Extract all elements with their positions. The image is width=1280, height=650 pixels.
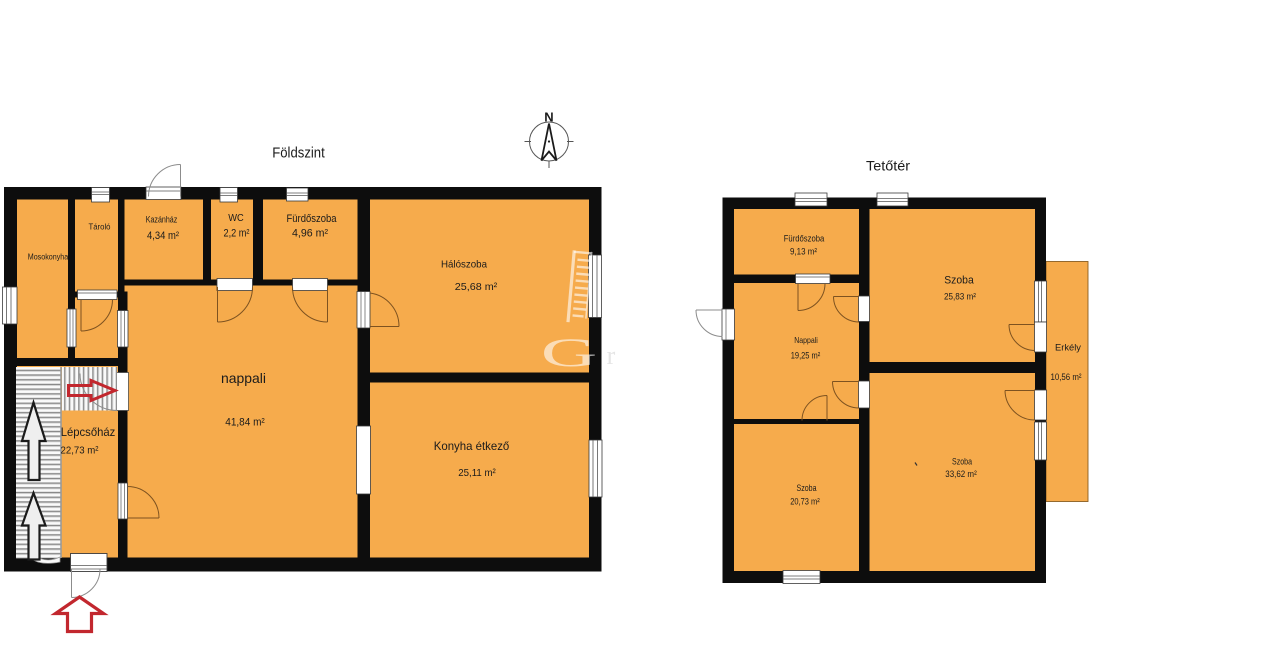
svg-text:N: N bbox=[544, 110, 553, 125]
svg-text:G: G bbox=[541, 331, 597, 375]
svg-text:Hálószoba: Hálószoba bbox=[441, 259, 487, 271]
svg-text:22,73 m²: 22,73 m² bbox=[61, 445, 99, 457]
svg-text:Kazánház: Kazánház bbox=[146, 215, 178, 225]
svg-text:4,34 m²: 4,34 m² bbox=[147, 230, 179, 242]
svg-text:4,96 m²: 4,96 m² bbox=[292, 228, 328, 240]
svg-text:41,84 m²: 41,84 m² bbox=[225, 417, 265, 429]
svg-text:9,13 m²: 9,13 m² bbox=[790, 247, 817, 258]
svg-text:10,56 m²: 10,56 m² bbox=[1051, 372, 1082, 383]
svg-text:nappali: nappali bbox=[221, 370, 266, 386]
svg-text:Lépcsőház: Lépcsőház bbox=[61, 425, 116, 439]
svg-text:Földszint: Földszint bbox=[272, 145, 325, 162]
svg-text:25,11 m²: 25,11 m² bbox=[458, 467, 496, 479]
svg-text:Szoba: Szoba bbox=[797, 483, 818, 494]
svg-text:20,73 m²: 20,73 m² bbox=[790, 497, 820, 508]
svg-text:25,68 m²: 25,68 m² bbox=[455, 281, 498, 293]
svg-text:Szoba: Szoba bbox=[952, 457, 973, 468]
svg-text:WC: WC bbox=[228, 212, 244, 224]
svg-text:Tetőtér: Tetőtér bbox=[866, 158, 910, 174]
svg-text:19,25 m²: 19,25 m² bbox=[791, 351, 821, 362]
svg-text:Nappali: Nappali bbox=[794, 335, 818, 345]
svg-text:Mosokonyha: Mosokonyha bbox=[28, 253, 69, 262]
svg-text:2,2 m²: 2,2 m² bbox=[224, 228, 250, 240]
svg-text:Tároló: Tároló bbox=[89, 222, 111, 232]
svg-text:Fürdőszoba: Fürdőszoba bbox=[784, 234, 825, 244]
svg-text:33,62 m²: 33,62 m² bbox=[945, 469, 977, 480]
svg-text:Szoba: Szoba bbox=[944, 275, 974, 287]
svg-text:r: r bbox=[607, 341, 616, 370]
svg-text:Erkély: Erkély bbox=[1055, 343, 1081, 354]
svg-text:Konyha étkező: Konyha étkező bbox=[434, 439, 510, 453]
svg-text:Fürdőszoba: Fürdőszoba bbox=[287, 213, 338, 225]
svg-text:25,83 m²: 25,83 m² bbox=[944, 292, 976, 303]
